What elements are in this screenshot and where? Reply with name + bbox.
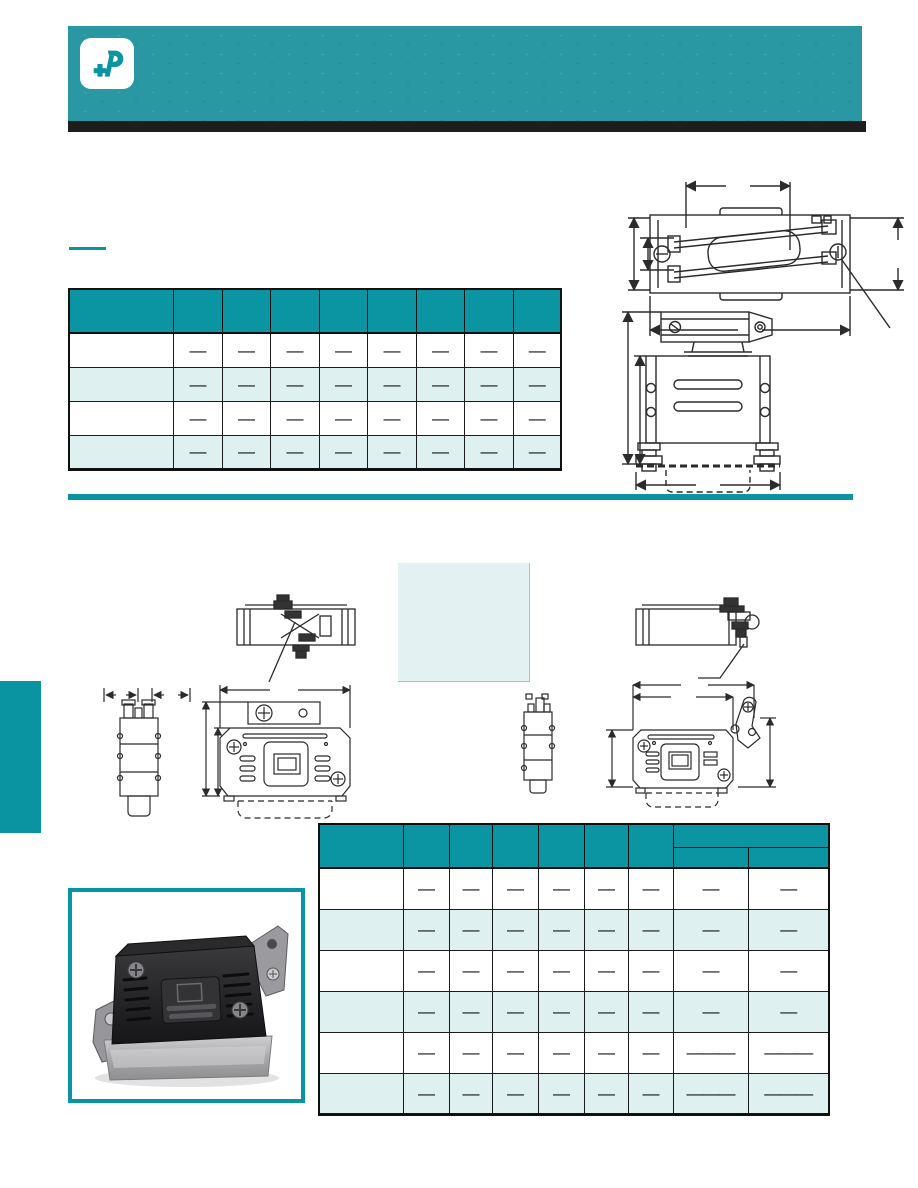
value-cell: — (319, 367, 367, 401)
value-cell: — (270, 367, 319, 401)
row-label-cell (69, 401, 173, 435)
column-header (319, 289, 367, 333)
value-cell: — (584, 1032, 628, 1073)
value-cell: ——— (673, 1073, 748, 1114)
column-header (173, 289, 222, 333)
value-cell: — (403, 868, 449, 909)
value-cell: — (492, 950, 538, 991)
value-cell: — (222, 333, 270, 367)
value-cell: — (513, 435, 561, 469)
value-cell: — (449, 991, 492, 1032)
column-header (416, 289, 464, 333)
catalog-page: ———————————————————————————————— (0, 0, 918, 1188)
row-label-cell (319, 950, 403, 991)
row-label-cell (319, 868, 403, 909)
value-cell: — (449, 950, 492, 991)
value-cell: — (319, 333, 367, 367)
value-cell: — (513, 333, 561, 367)
value-cell: — (367, 367, 416, 401)
value-cell: — (673, 991, 748, 1032)
value-cell: — (222, 401, 270, 435)
value-cell: ——— (748, 1032, 829, 1073)
table-row: ———————————— (319, 1032, 829, 1073)
value-cell: — (319, 435, 367, 469)
value-cell: — (270, 401, 319, 435)
value-cell: — (584, 1073, 628, 1114)
value-cell: — (492, 868, 538, 909)
value-cell: — (513, 401, 561, 435)
value-cell: — (449, 909, 492, 950)
value-cell: — (748, 950, 829, 991)
value-cell: — (173, 401, 222, 435)
table-row: ———————— (319, 909, 829, 950)
value-cell: — (367, 435, 416, 469)
product-photo (72, 892, 301, 1099)
value-cell: — (270, 435, 319, 469)
table-row: ———————— (69, 367, 561, 401)
row-label-cell (319, 909, 403, 950)
value-cell: — (584, 909, 628, 950)
logo-card (80, 38, 134, 89)
column-header (403, 824, 449, 868)
drawing-front-view-hood (596, 300, 861, 495)
header-banner (68, 26, 862, 121)
value-cell: — (538, 950, 584, 991)
value-cell: — (628, 909, 673, 950)
value-cell: — (416, 333, 464, 367)
sub-column-header (748, 847, 829, 868)
value-cell: — (464, 435, 513, 469)
group-column-header (673, 824, 829, 847)
value-cell: — (748, 991, 829, 1032)
value-cell: — (449, 1032, 492, 1073)
table-header-row (69, 289, 561, 333)
value-cell: — (416, 367, 464, 401)
positronic-logo-icon (87, 44, 127, 84)
value-cell: ——— (748, 1073, 829, 1114)
table-row: ———————— (319, 991, 829, 1032)
row-label-cell (319, 1032, 403, 1073)
value-cell: — (270, 333, 319, 367)
value-cell: — (222, 435, 270, 469)
table-header-row (319, 824, 829, 847)
value-cell: — (319, 401, 367, 435)
column-header (492, 824, 538, 868)
value-cell: — (628, 868, 673, 909)
table-row: ———————— (319, 950, 829, 991)
value-cell: — (628, 1073, 673, 1114)
value-cell: — (628, 1032, 673, 1073)
value-cell: — (584, 868, 628, 909)
value-cell: — (538, 991, 584, 1032)
table-row: ———————— (69, 333, 561, 367)
value-cell: — (538, 909, 584, 950)
table-row: ———————— (69, 401, 561, 435)
value-cell: — (673, 868, 748, 909)
value-cell: — (748, 909, 829, 950)
value-cell: — (673, 950, 748, 991)
value-cell: — (367, 333, 416, 367)
value-cell: — (584, 950, 628, 991)
value-cell: — (173, 435, 222, 469)
value-cell: — (416, 401, 464, 435)
spec-callout-box (398, 563, 530, 682)
column-header (584, 824, 628, 868)
column-header (513, 289, 561, 333)
row-label-cell (69, 367, 173, 401)
value-cell: — (403, 1032, 449, 1073)
value-cell: — (464, 333, 513, 367)
page-side-tab (0, 681, 41, 833)
value-cell: — (673, 909, 748, 950)
value-cell: — (173, 333, 222, 367)
value-cell: — (173, 367, 222, 401)
column-header (464, 289, 513, 333)
value-cell: — (538, 1073, 584, 1114)
row-label-cell (319, 991, 403, 1032)
column-header (538, 824, 584, 868)
value-cell: — (222, 367, 270, 401)
column-header (367, 289, 416, 333)
drawing-pair-left (98, 680, 388, 825)
value-cell: — (464, 367, 513, 401)
column-header (628, 824, 673, 868)
value-cell: — (492, 1073, 538, 1114)
table-row: ———————— (69, 435, 561, 469)
column-header (222, 289, 270, 333)
value-cell: — (367, 401, 416, 435)
column-header (449, 824, 492, 868)
value-cell: — (748, 868, 829, 909)
product-photo-frame (68, 888, 305, 1103)
column-header (270, 289, 319, 333)
section-heading-underline (69, 247, 106, 250)
value-cell: — (403, 991, 449, 1032)
dimension-table-2: ————————————————————————————————————————… (318, 823, 830, 1116)
value-cell: — (416, 435, 464, 469)
column-header (319, 824, 403, 868)
table-row: ———————————— (319, 1073, 829, 1114)
value-cell: — (403, 909, 449, 950)
value-cell: — (628, 991, 673, 1032)
section-divider-rule (68, 494, 853, 500)
value-cell: — (538, 868, 584, 909)
value-cell: — (492, 1032, 538, 1073)
header-black-bar (68, 121, 866, 132)
value-cell: — (492, 909, 538, 950)
value-cell: — (449, 868, 492, 909)
table-row: ———————— (319, 868, 829, 909)
value-cell: ——— (673, 1032, 748, 1073)
row-label-cell (69, 435, 173, 469)
value-cell: — (403, 950, 449, 991)
value-cell: — (538, 1032, 584, 1073)
value-cell: — (584, 991, 628, 1032)
value-cell: — (492, 991, 538, 1032)
value-cell: — (449, 1073, 492, 1114)
sub-column-header (673, 847, 748, 868)
value-cell: — (513, 367, 561, 401)
dimension-table-1: ———————————————————————————————— (68, 288, 562, 471)
row-label-cell (69, 333, 173, 367)
value-cell: — (628, 950, 673, 991)
value-cell: — (403, 1073, 449, 1114)
drawing-pair-right (486, 680, 796, 825)
value-cell: — (464, 401, 513, 435)
row-label-cell (319, 1073, 403, 1114)
column-header (69, 289, 173, 333)
